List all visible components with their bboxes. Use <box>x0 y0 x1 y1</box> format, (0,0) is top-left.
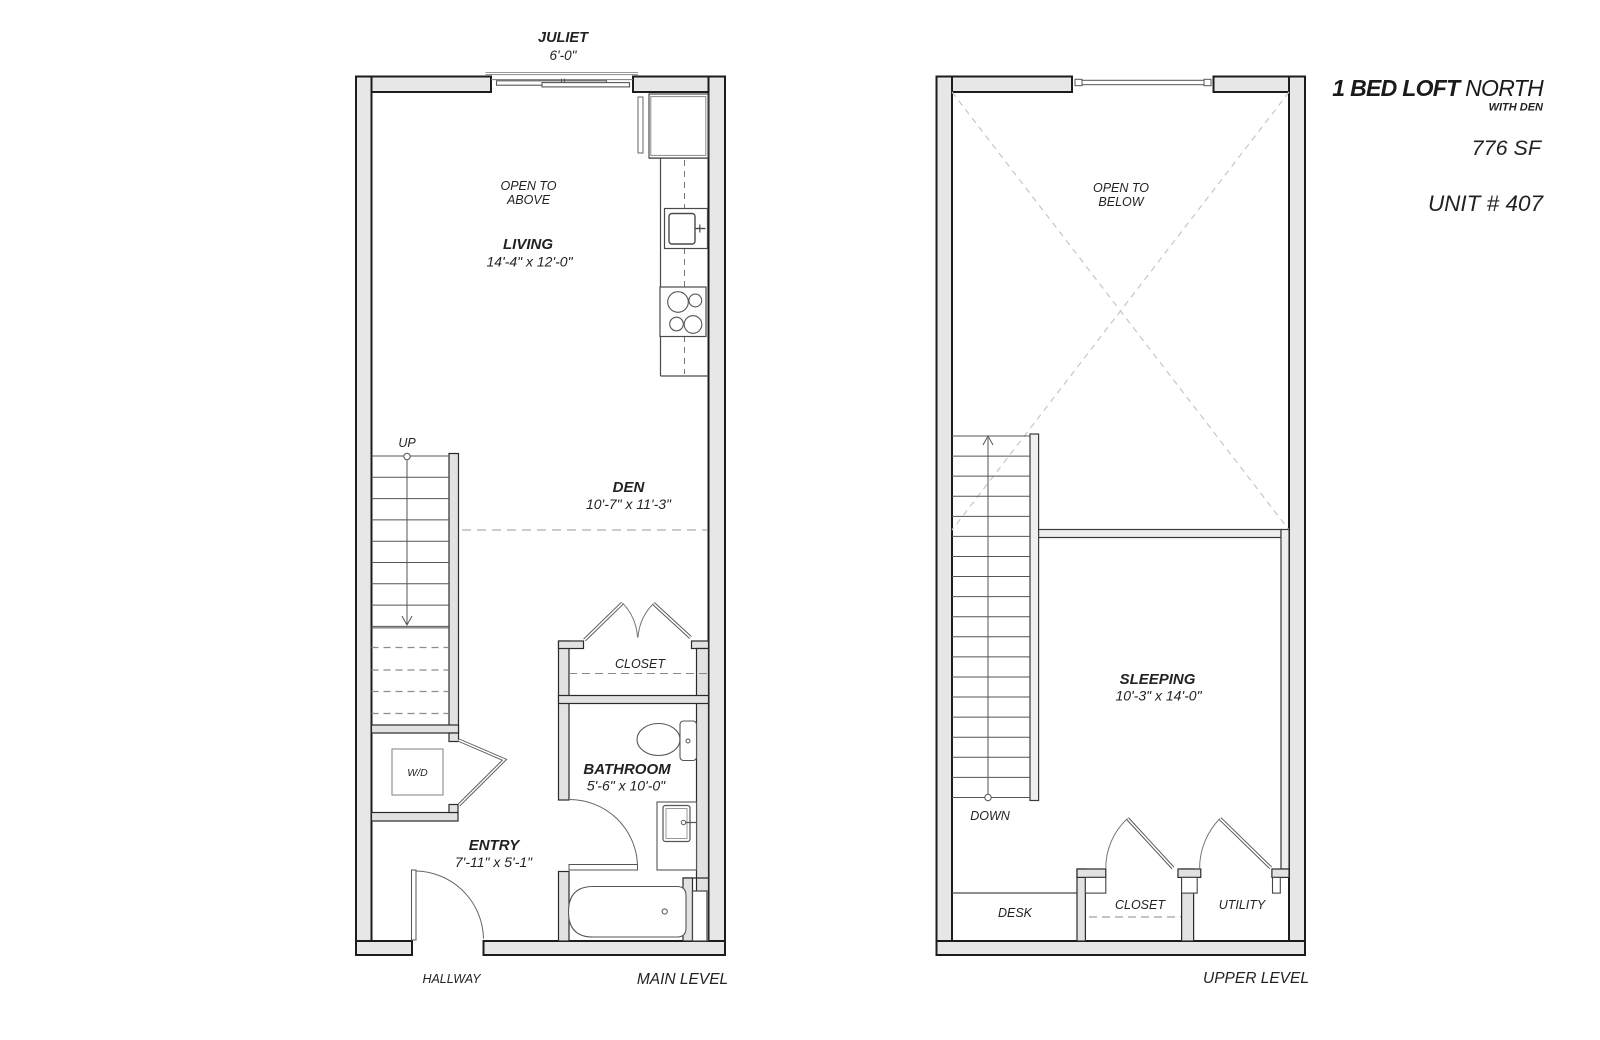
svg-text:DESK: DESK <box>998 906 1033 920</box>
svg-text:6'-0": 6'-0" <box>550 48 578 63</box>
svg-text:CLOSET: CLOSET <box>1115 898 1166 912</box>
svg-text:DOWN: DOWN <box>970 809 1011 823</box>
svg-text:UPPER LEVEL: UPPER LEVEL <box>1203 970 1309 987</box>
svg-text:OPEN TO: OPEN TO <box>1093 181 1149 195</box>
svg-text:UP: UP <box>398 436 416 450</box>
svg-text:WITH DEN: WITH DEN <box>1489 102 1544 114</box>
svg-text:ABOVE: ABOVE <box>506 193 551 207</box>
svg-text:ENTRY: ENTRY <box>469 837 522 854</box>
svg-text:14'-4" x 12'-0": 14'-4" x 12'-0" <box>486 254 573 270</box>
svg-text:10'-3" x 14'-0": 10'-3" x 14'-0" <box>1115 688 1202 704</box>
svg-text:BELOW: BELOW <box>1098 195 1144 209</box>
svg-text:BATHROOM: BATHROOM <box>583 761 671 778</box>
svg-text:JULIET: JULIET <box>538 30 589 46</box>
svg-text:MAIN LEVEL: MAIN LEVEL <box>637 971 728 988</box>
svg-text:1 BED LOFT NORTH: 1 BED LOFT NORTH <box>1332 75 1544 101</box>
svg-text:5'-6" x 10'-0": 5'-6" x 10'-0" <box>587 778 666 794</box>
svg-text:776 SF: 776 SF <box>1472 136 1543 160</box>
svg-text:LIVING: LIVING <box>503 236 553 253</box>
svg-text:OPEN TO: OPEN TO <box>500 179 556 193</box>
svg-text:10'-7" x 11'-3": 10'-7" x 11'-3" <box>586 496 672 512</box>
svg-text:HALLWAY: HALLWAY <box>422 972 482 986</box>
svg-text:W/D: W/D <box>407 767 428 779</box>
svg-text:CLOSET: CLOSET <box>615 657 666 671</box>
svg-text:UNIT # 407: UNIT # 407 <box>1428 191 1545 216</box>
svg-text:UTILITY: UTILITY <box>1219 898 1267 912</box>
svg-text:DEN: DEN <box>613 479 646 496</box>
svg-text:7'-11" x 5'-1": 7'-11" x 5'-1" <box>455 854 533 870</box>
svg-text:SLEEPING: SLEEPING <box>1120 671 1196 688</box>
